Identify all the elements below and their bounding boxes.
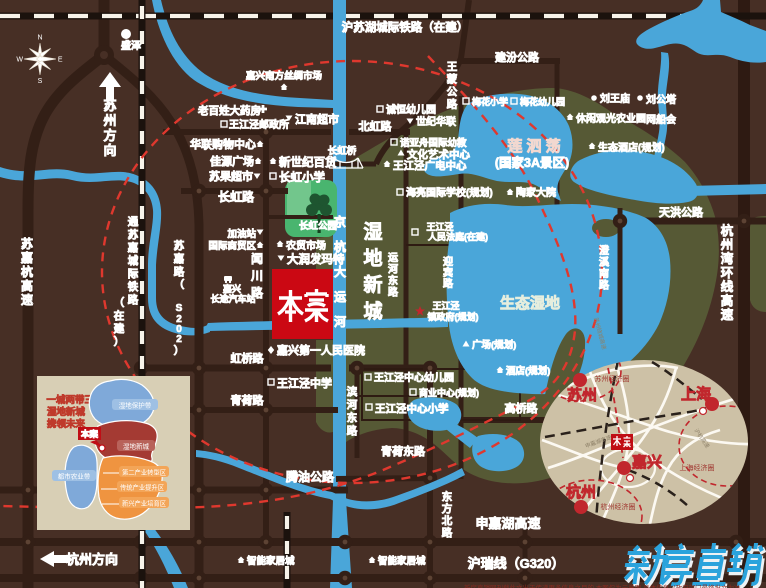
svg-text:路: 路 <box>347 424 358 437</box>
svg-text:河: 河 <box>347 399 358 411</box>
svg-text:莲 泗 荡: 莲 泗 荡 <box>507 137 560 155</box>
svg-text:刘公塔: 刘公塔 <box>646 93 677 106</box>
svg-text:休闲观光农业园: 休闲观光农业园 <box>575 112 646 125</box>
svg-text:国际商贸区: 国际商贸区 <box>208 240 256 252</box>
svg-text:路: 路 <box>128 293 139 306</box>
svg-text:刘王庙: 刘王庙 <box>600 92 630 105</box>
svg-text:大润发玛特: 大润发玛特 <box>287 252 345 266</box>
svg-text:铁: 铁 <box>128 280 139 293</box>
svg-text:大: 大 <box>334 264 346 279</box>
svg-text:上海: 上海 <box>681 385 711 403</box>
svg-text:王江泾广电中心: 王江泾广电中心 <box>393 159 467 172</box>
svg-text:长虹路: 长虹路 <box>218 189 255 204</box>
svg-text:网船会: 网船会 <box>646 113 676 126</box>
svg-text:(国家3A景区): (国家3A景区) <box>495 155 569 170</box>
svg-text:川: 川 <box>250 269 263 283</box>
svg-text:南: 南 <box>599 267 609 280</box>
svg-text:（: （ <box>114 296 125 309</box>
svg-text:滨: 滨 <box>347 385 358 398</box>
svg-text:东: 东 <box>388 274 398 287</box>
svg-text:青荷东路: 青荷东路 <box>381 444 426 458</box>
svg-text:路: 路 <box>599 279 610 292</box>
svg-text:江南超市: 江南超市 <box>295 112 339 126</box>
svg-text:本案: 本案 <box>81 429 99 439</box>
svg-text:线: 线 <box>721 279 734 294</box>
svg-text:闻: 闻 <box>251 252 263 266</box>
svg-text:王江泾中心幼儿园: 王江泾中心幼儿园 <box>374 371 454 384</box>
svg-text:运: 运 <box>334 290 346 304</box>
svg-text:速: 速 <box>721 307 734 322</box>
svg-text:S: S <box>38 78 43 85</box>
svg-text:方: 方 <box>442 502 453 515</box>
svg-text:传统产业提升区: 传统产业提升区 <box>120 483 164 492</box>
svg-text:广场(规划): 广场(规划) <box>472 339 516 351</box>
svg-text:路: 路 <box>388 286 399 299</box>
svg-text:宾: 宾 <box>443 266 453 279</box>
svg-text:佳源广场: 佳源广场 <box>210 154 254 168</box>
svg-text:第二产业转型区: 第二产业转型区 <box>122 468 166 477</box>
svg-text:）: ） <box>174 344 185 357</box>
svg-text:长虹公园: 长虹公园 <box>299 220 337 232</box>
svg-text:陶家大院: 陶家大院 <box>516 186 556 199</box>
svg-text:商业中心(规划): 商业中心(规划) <box>419 387 479 398</box>
svg-text:杭州经济圈: 杭州经济圈 <box>601 502 636 511</box>
svg-text:S: S <box>176 303 183 314</box>
svg-text:人民法庭(在建): 人民法庭(在建) <box>427 231 488 242</box>
svg-text:（: （ <box>174 278 185 291</box>
svg-text:湿: 湿 <box>363 221 382 243</box>
svg-text:苏: 苏 <box>128 228 139 241</box>
svg-text:长途汽车站: 长途汽车站 <box>210 293 255 304</box>
svg-text:湿地新城: 湿地新城 <box>47 406 86 418</box>
svg-text:王江泾邮政所: 王江泾邮政所 <box>229 118 289 131</box>
svg-text:N: N <box>37 35 42 42</box>
svg-text:湿地新城: 湿地新城 <box>123 442 150 451</box>
svg-text:镇政府(规划): 镇政府(规划) <box>428 311 479 322</box>
svg-text:公: 公 <box>447 86 458 98</box>
svg-text:蒙: 蒙 <box>447 73 458 86</box>
svg-text:建汾公路: 建汾公路 <box>495 50 540 64</box>
svg-text:环: 环 <box>721 266 734 280</box>
svg-text:王江泾: 王江泾 <box>426 221 453 232</box>
svg-text:新兴产业培育区: 新兴产业培育区 <box>122 499 166 508</box>
svg-text:生态湿地: 生态湿地 <box>500 294 560 312</box>
svg-text:运: 运 <box>388 252 398 264</box>
svg-text:申嘉湖高速: 申嘉湖高速 <box>475 516 540 531</box>
svg-text:速: 速 <box>21 292 33 307</box>
svg-text:苏: 苏 <box>103 98 116 113</box>
svg-text:东: 东 <box>347 411 358 424</box>
svg-text:长虹小学: 长虹小学 <box>279 170 325 184</box>
svg-text:州: 州 <box>102 113 116 128</box>
svg-text:际: 际 <box>128 268 139 280</box>
svg-text:青荷路: 青荷路 <box>231 393 265 407</box>
svg-text:路: 路 <box>447 98 458 111</box>
svg-text:生态酒店(规划): 生态酒店(规划) <box>598 141 665 154</box>
svg-text:苏州: 苏州 <box>567 386 597 404</box>
svg-text:上海经济圈: 上海经济圈 <box>680 463 715 472</box>
svg-text:城: 城 <box>128 254 139 267</box>
svg-text:智能家居城: 智能家居城 <box>378 555 426 567</box>
svg-text:河: 河 <box>388 264 398 276</box>
svg-text:澄: 澄 <box>599 244 610 257</box>
svg-text:盛泽: 盛泽 <box>121 39 141 52</box>
svg-text:地: 地 <box>363 247 382 270</box>
svg-text:湿地保护带: 湿地保护带 <box>119 401 152 410</box>
svg-text:河: 河 <box>333 314 346 329</box>
svg-text:加油站: 加油站 <box>226 228 256 240</box>
svg-text:高: 高 <box>721 293 734 308</box>
svg-text:虹桥路: 虹桥路 <box>231 351 265 365</box>
svg-text:苏果超市: 苏果超市 <box>209 169 253 183</box>
svg-text:沪瑞线（G320）: 沪瑞线（G320） <box>468 556 565 571</box>
svg-text:北虹路: 北虹路 <box>359 119 393 133</box>
svg-text:苏: 苏 <box>174 239 185 252</box>
svg-text:嘉: 嘉 <box>127 241 139 254</box>
svg-text:杭州: 杭州 <box>566 483 596 501</box>
svg-text:城: 城 <box>363 300 382 323</box>
svg-text:沪苏湖城际铁路（在建）: 沪苏湖城际铁路（在建） <box>342 20 469 34</box>
svg-text:高桥路: 高桥路 <box>505 401 539 415</box>
svg-text:腾油公路: 腾油公路 <box>285 469 335 484</box>
svg-text:溪: 溪 <box>599 256 610 269</box>
svg-text:梅花幼儿园: 梅花幼儿园 <box>520 96 565 107</box>
svg-text:新世纪百货: 新世纪百货 <box>279 155 337 169</box>
svg-text:酒店(规划): 酒店(规划) <box>506 365 550 377</box>
svg-text:农贸市场: 农贸市场 <box>285 239 326 252</box>
svg-text:王江泾中学: 王江泾中学 <box>277 376 332 390</box>
svg-text:嘉兴: 嘉兴 <box>631 453 662 471</box>
svg-text:嘉兴南方丝绸市场: 嘉兴南方丝绸市场 <box>245 70 323 82</box>
svg-text:E: E <box>58 57 63 64</box>
svg-text:杭: 杭 <box>21 264 33 279</box>
svg-text:都市农业带: 都市农业带 <box>58 472 91 481</box>
svg-text:）: ） <box>114 335 125 348</box>
svg-text:路: 路 <box>442 526 453 539</box>
svg-text:路: 路 <box>443 277 454 290</box>
svg-text:王江泾中心小学: 王江泾中心小学 <box>375 402 449 415</box>
svg-text:州: 州 <box>720 238 734 252</box>
svg-text:王: 王 <box>447 61 458 73</box>
svg-text:京: 京 <box>334 214 346 229</box>
svg-text:湾: 湾 <box>721 251 734 266</box>
svg-text:北: 北 <box>442 514 453 527</box>
svg-text:华联购物中心: 华联购物中心 <box>190 137 256 151</box>
svg-text:杭州方向: 杭州方向 <box>66 552 118 567</box>
svg-text:苏州经济圈: 苏州经济圈 <box>595 374 630 383</box>
svg-text:天洪公路: 天洪公路 <box>659 205 704 219</box>
svg-text:建: 建 <box>113 322 125 335</box>
svg-text:苏: 苏 <box>21 236 33 251</box>
svg-text:嘉: 嘉 <box>173 252 185 265</box>
svg-text:向: 向 <box>103 143 116 158</box>
svg-text:东: 东 <box>442 490 453 503</box>
svg-text:老百姓大药房: 老百姓大药房 <box>197 104 261 117</box>
svg-text:杭: 杭 <box>334 239 346 254</box>
svg-text:嘉兴第一人民医院: 嘉兴第一人民医院 <box>276 343 365 357</box>
svg-text:梅花小学: 梅花小学 <box>472 96 508 107</box>
svg-text:王江泾: 王江泾 <box>432 300 459 311</box>
svg-text:海亮国际学校(规划): 海亮国际学校(规划) <box>406 186 493 199</box>
svg-text:智能家居城: 智能家居城 <box>247 555 295 567</box>
svg-text:路: 路 <box>174 265 185 278</box>
svg-text:世纪华联: 世纪华联 <box>416 115 456 128</box>
svg-text:在: 在 <box>114 309 125 322</box>
svg-text:嘉: 嘉 <box>20 250 33 265</box>
svg-text:嘉兴: 嘉兴 <box>222 283 241 294</box>
svg-text:迎: 迎 <box>443 255 453 268</box>
svg-text:诺亚舟国际幼教: 诺亚舟国际幼教 <box>400 137 467 149</box>
svg-text:长虹桥: 长虹桥 <box>328 145 357 157</box>
svg-text:2: 2 <box>176 334 182 345</box>
svg-text:诚恒幼儿园: 诚恒幼儿园 <box>386 103 436 116</box>
svg-text:W: W <box>16 57 23 64</box>
svg-text:杭: 杭 <box>721 223 734 238</box>
svg-text:高: 高 <box>21 278 33 293</box>
svg-text:通: 通 <box>128 216 139 228</box>
svg-text:新: 新 <box>363 273 382 296</box>
svg-text:方: 方 <box>103 128 116 143</box>
